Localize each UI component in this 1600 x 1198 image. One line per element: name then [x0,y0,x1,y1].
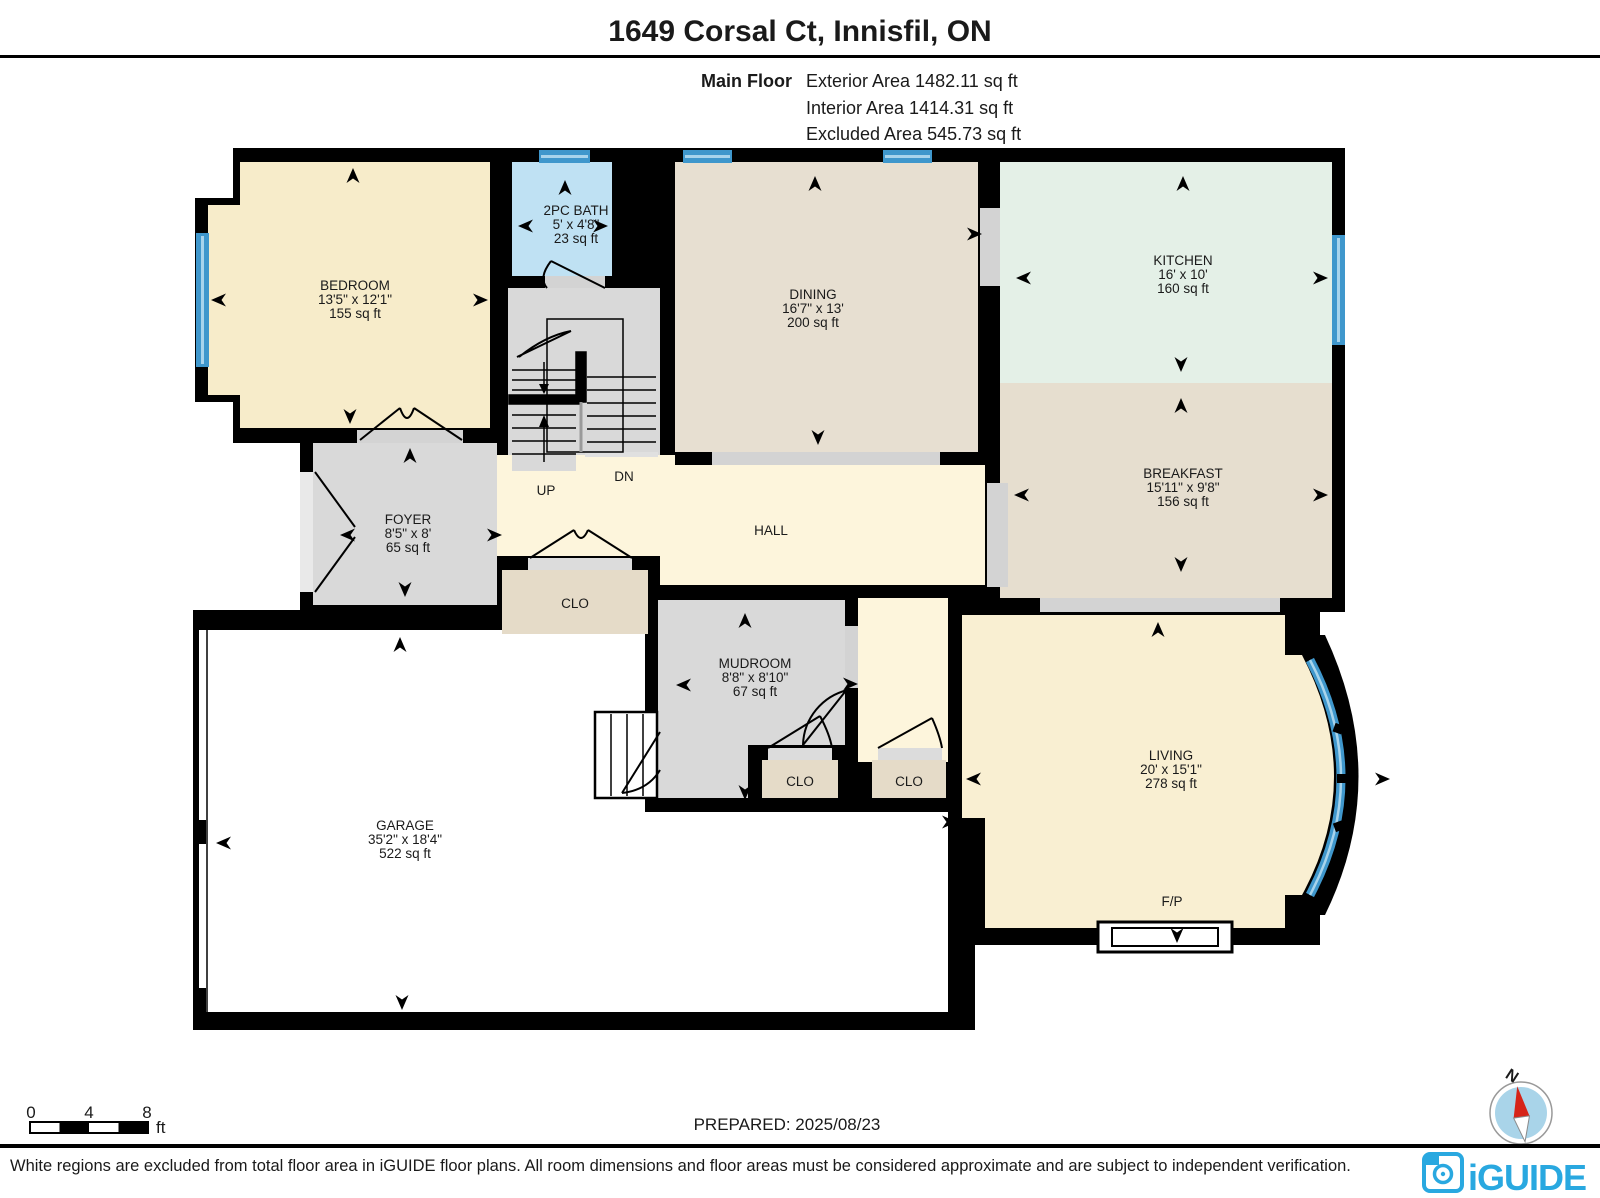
floor-plan-canvas: 1649 Corsal Ct, Innisfil, ON Main Floor … [0,0,1600,1198]
label-dining-name: DINING [789,287,836,302]
label-dining-area: 200 sq ft [787,315,839,330]
label-garage-area: 522 sq ft [379,846,431,861]
label-bedroom-dims: 13'5" x 12'1" [318,292,392,307]
label-dining-dims: 16'7" x 13' [782,301,844,316]
scale-tick-0: 0 [26,1103,35,1122]
window-bedroom [196,233,209,367]
label-bath-name: 2PC BATH [543,203,608,218]
label-foyer-name: FOYER [385,512,432,527]
label-kitchen-area: 160 sq ft [1157,281,1209,296]
label-breakfast-name: BREAKFAST [1143,466,1223,481]
label-garage-name: GARAGE [376,818,434,833]
label-closet-mudroom: CLO [786,774,814,789]
label-bedroom-area: 155 sq ft [329,306,381,321]
label-breakfast-dims: 15'11" x 9'8" [1146,480,1219,495]
label-bedroom-name: BEDROOM [320,278,390,293]
label-closet-hall: CLO [561,596,589,611]
camera-icon [1424,1154,1462,1191]
label-living-name: LIVING [1149,748,1193,763]
brand-name: iGUIDE [1468,1157,1586,1198]
label-fireplace: F/P [1161,894,1182,909]
label-mudroom-name: MUDROOM [719,656,792,671]
compass-icon: N [1490,1066,1552,1144]
label-garage-dims: 35'2" x 18'4" [368,832,442,847]
label-living-area: 278 sq ft [1145,776,1197,791]
window-dining-left [683,150,732,163]
label-closet-living: CLO [895,774,923,789]
exterior-area: Exterior Area 1482.11 sq ft [806,71,1018,91]
fireplace [1098,922,1232,952]
page-title: 1649 Corsal Ct, Innisfil, ON [608,15,991,48]
label-kitchen-dims: 16' x 10' [1158,267,1207,282]
label-foyer-dims: 8'5" x 8' [385,526,432,541]
label-mudroom-area: 67 sq ft [733,684,778,699]
prepared-date: PREPARED: 2025/08/23 [694,1115,881,1134]
label-mudroom-dims: 8'8" x 8'10" [722,670,789,685]
floor-plan-page: 1649 Corsal Ct, Innisfil, ON Main Floor … [0,0,1600,1198]
floor-label: Main Floor [701,71,792,91]
label-living-dims: 20' x 15'1" [1140,762,1202,777]
scale-bar: 0 4 8 ft [26,1103,165,1137]
label-breakfast-area: 156 sq ft [1157,494,1209,509]
excluded-area: Excluded Area 545.73 sq ft [806,124,1021,144]
footer-divider [0,1144,1600,1148]
label-stairs-down: DN [614,469,634,484]
header-divider [0,55,1600,58]
window-kitchen [1332,235,1345,345]
scale-tick-8: 8 [142,1103,151,1122]
scale-tick-4: 4 [84,1103,93,1122]
window-dining-right [883,150,932,163]
interior-area: Interior Area 1414.31 sq ft [806,98,1013,118]
label-foyer-area: 65 sq ft [386,540,431,555]
label-hall: HALL [754,523,788,538]
scale-unit: ft [156,1118,166,1137]
window-bath [539,150,590,163]
label-stairs-up: UP [537,483,556,498]
iguide-logo: iGUIDE [1424,1154,1586,1198]
label-bath-dims: 5' x 4'8" [553,217,600,232]
label-bath-area: 23 sq ft [554,231,599,246]
label-kitchen-name: KITCHEN [1153,253,1212,268]
disclaimer-text: White regions are excluded from total fl… [10,1157,1351,1175]
